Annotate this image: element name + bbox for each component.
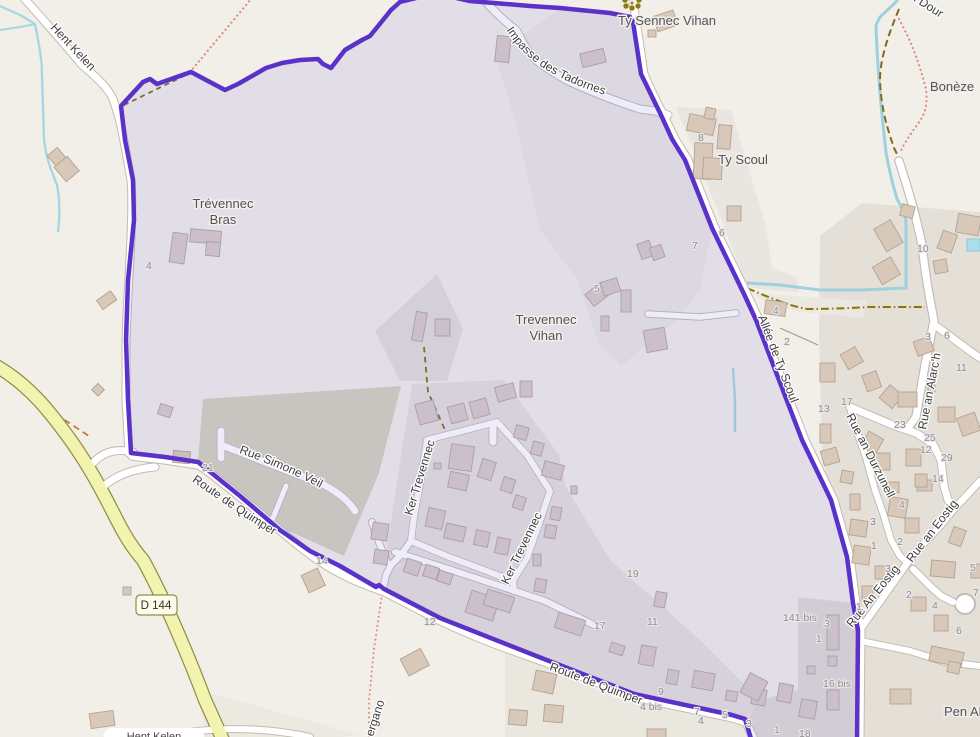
svg-text:3: 3	[746, 718, 752, 730]
svg-text:Pen All: Pen All	[944, 704, 980, 719]
svg-text:25: 25	[924, 432, 936, 444]
svg-text:3: 3	[824, 618, 830, 630]
svg-text:6: 6	[719, 227, 725, 239]
svg-text:Bonèze: Bonèze	[930, 79, 974, 94]
svg-text:Ty Sennec Vihan: Ty Sennec Vihan	[618, 13, 716, 28]
svg-text:4: 4	[899, 499, 905, 511]
svg-text:Ty Scoul: Ty Scoul	[718, 152, 768, 167]
svg-text:5: 5	[970, 562, 976, 574]
svg-text:21: 21	[202, 462, 214, 474]
svg-text:4: 4	[773, 305, 779, 317]
svg-text:6: 6	[956, 625, 962, 637]
svg-text:11: 11	[647, 616, 658, 628]
svg-text:5: 5	[722, 709, 728, 721]
svg-text:Bras: Bras	[210, 212, 237, 227]
svg-text:4 bis: 4 bis	[640, 701, 662, 713]
svg-text:141 bis: 141 bis	[783, 612, 817, 624]
svg-text:29: 29	[941, 452, 953, 464]
svg-text:7: 7	[973, 587, 979, 599]
svg-text:16 bis: 16 bis	[823, 678, 851, 690]
svg-text:3: 3	[925, 331, 931, 343]
svg-text:14: 14	[932, 473, 944, 485]
svg-text:6: 6	[944, 330, 950, 342]
svg-text:4: 4	[932, 600, 938, 612]
svg-text:10: 10	[917, 243, 929, 255]
svg-text:3: 3	[870, 516, 876, 528]
svg-text:1: 1	[856, 601, 862, 613]
svg-text:4: 4	[146, 260, 152, 272]
svg-text:2: 2	[897, 536, 903, 548]
svg-text:2: 2	[784, 336, 790, 348]
svg-text:Trévennec: Trévennec	[193, 196, 254, 211]
svg-text:12: 12	[920, 444, 932, 456]
svg-text:Hent Kelen: Hent Kelen	[127, 731, 181, 737]
svg-text:8: 8	[698, 132, 704, 144]
svg-text:11: 11	[956, 362, 967, 374]
svg-text:5: 5	[594, 283, 600, 295]
svg-text:1: 1	[774, 724, 780, 736]
svg-text:14: 14	[316, 555, 328, 567]
svg-text:2: 2	[906, 589, 912, 601]
svg-text:3: 3	[885, 563, 891, 575]
svg-text:17: 17	[594, 620, 606, 632]
svg-text:19: 19	[627, 568, 639, 580]
svg-text:9: 9	[658, 686, 664, 698]
svg-text:4: 4	[698, 715, 704, 727]
svg-text:18: 18	[799, 728, 811, 737]
svg-text:D 144: D 144	[141, 600, 172, 612]
svg-text:1: 1	[816, 633, 822, 645]
svg-text:1: 1	[871, 540, 877, 552]
svg-text:Trevennec: Trevennec	[516, 312, 577, 327]
svg-text:23: 23	[894, 419, 906, 431]
svg-text:7: 7	[692, 240, 698, 252]
svg-text:Vihan: Vihan	[529, 328, 562, 343]
svg-text:17: 17	[841, 396, 853, 408]
svg-text:12: 12	[424, 616, 436, 628]
svg-text:13: 13	[818, 403, 830, 415]
